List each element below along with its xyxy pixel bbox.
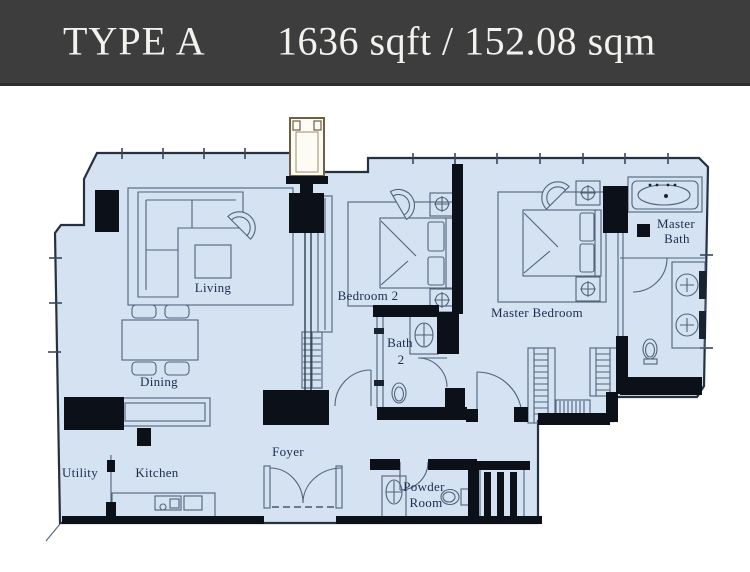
shower-fixture — [637, 224, 650, 237]
bath2-label-line1: Bath — [387, 335, 413, 350]
bedroom2-bed — [380, 218, 454, 288]
bath2-label-line2: 2 — [398, 352, 405, 367]
bedroom2-label: Bedroom 2 — [338, 288, 399, 303]
kitchen-label: Kitchen — [135, 465, 178, 480]
title-bar: TYPE A 1636 sqft / 152.08 sqm — [0, 0, 750, 86]
dining-label: Dining — [140, 374, 178, 389]
master-bedroom-label: Master Bedroom — [491, 305, 583, 320]
dining-table — [122, 320, 198, 360]
wall-end-detail — [46, 524, 60, 541]
unit-type-label: TYPE A — [63, 17, 206, 64]
powder-room-label-line2: Room — [410, 495, 443, 510]
floorplan-page: TYPE A 1636 sqft / 152.08 sqm — [0, 0, 750, 572]
unit-area-label: 1636 sqft / 152.08 sqm — [277, 17, 656, 64]
master-bed — [523, 210, 601, 276]
master-bath-label-line2: Bath — [664, 231, 690, 246]
dining-chair — [132, 305, 156, 318]
powder-room-label-line1: Powder — [403, 479, 445, 494]
living-label: Living — [195, 280, 232, 295]
floor-plan: Living Dining Kitchen — [0, 86, 750, 572]
master-bath-label-line1: Master — [657, 216, 695, 231]
flue-duct — [290, 118, 324, 176]
utility-label: Utility — [62, 465, 98, 480]
foyer-label: Foyer — [272, 444, 304, 459]
dining-chair — [165, 305, 189, 318]
